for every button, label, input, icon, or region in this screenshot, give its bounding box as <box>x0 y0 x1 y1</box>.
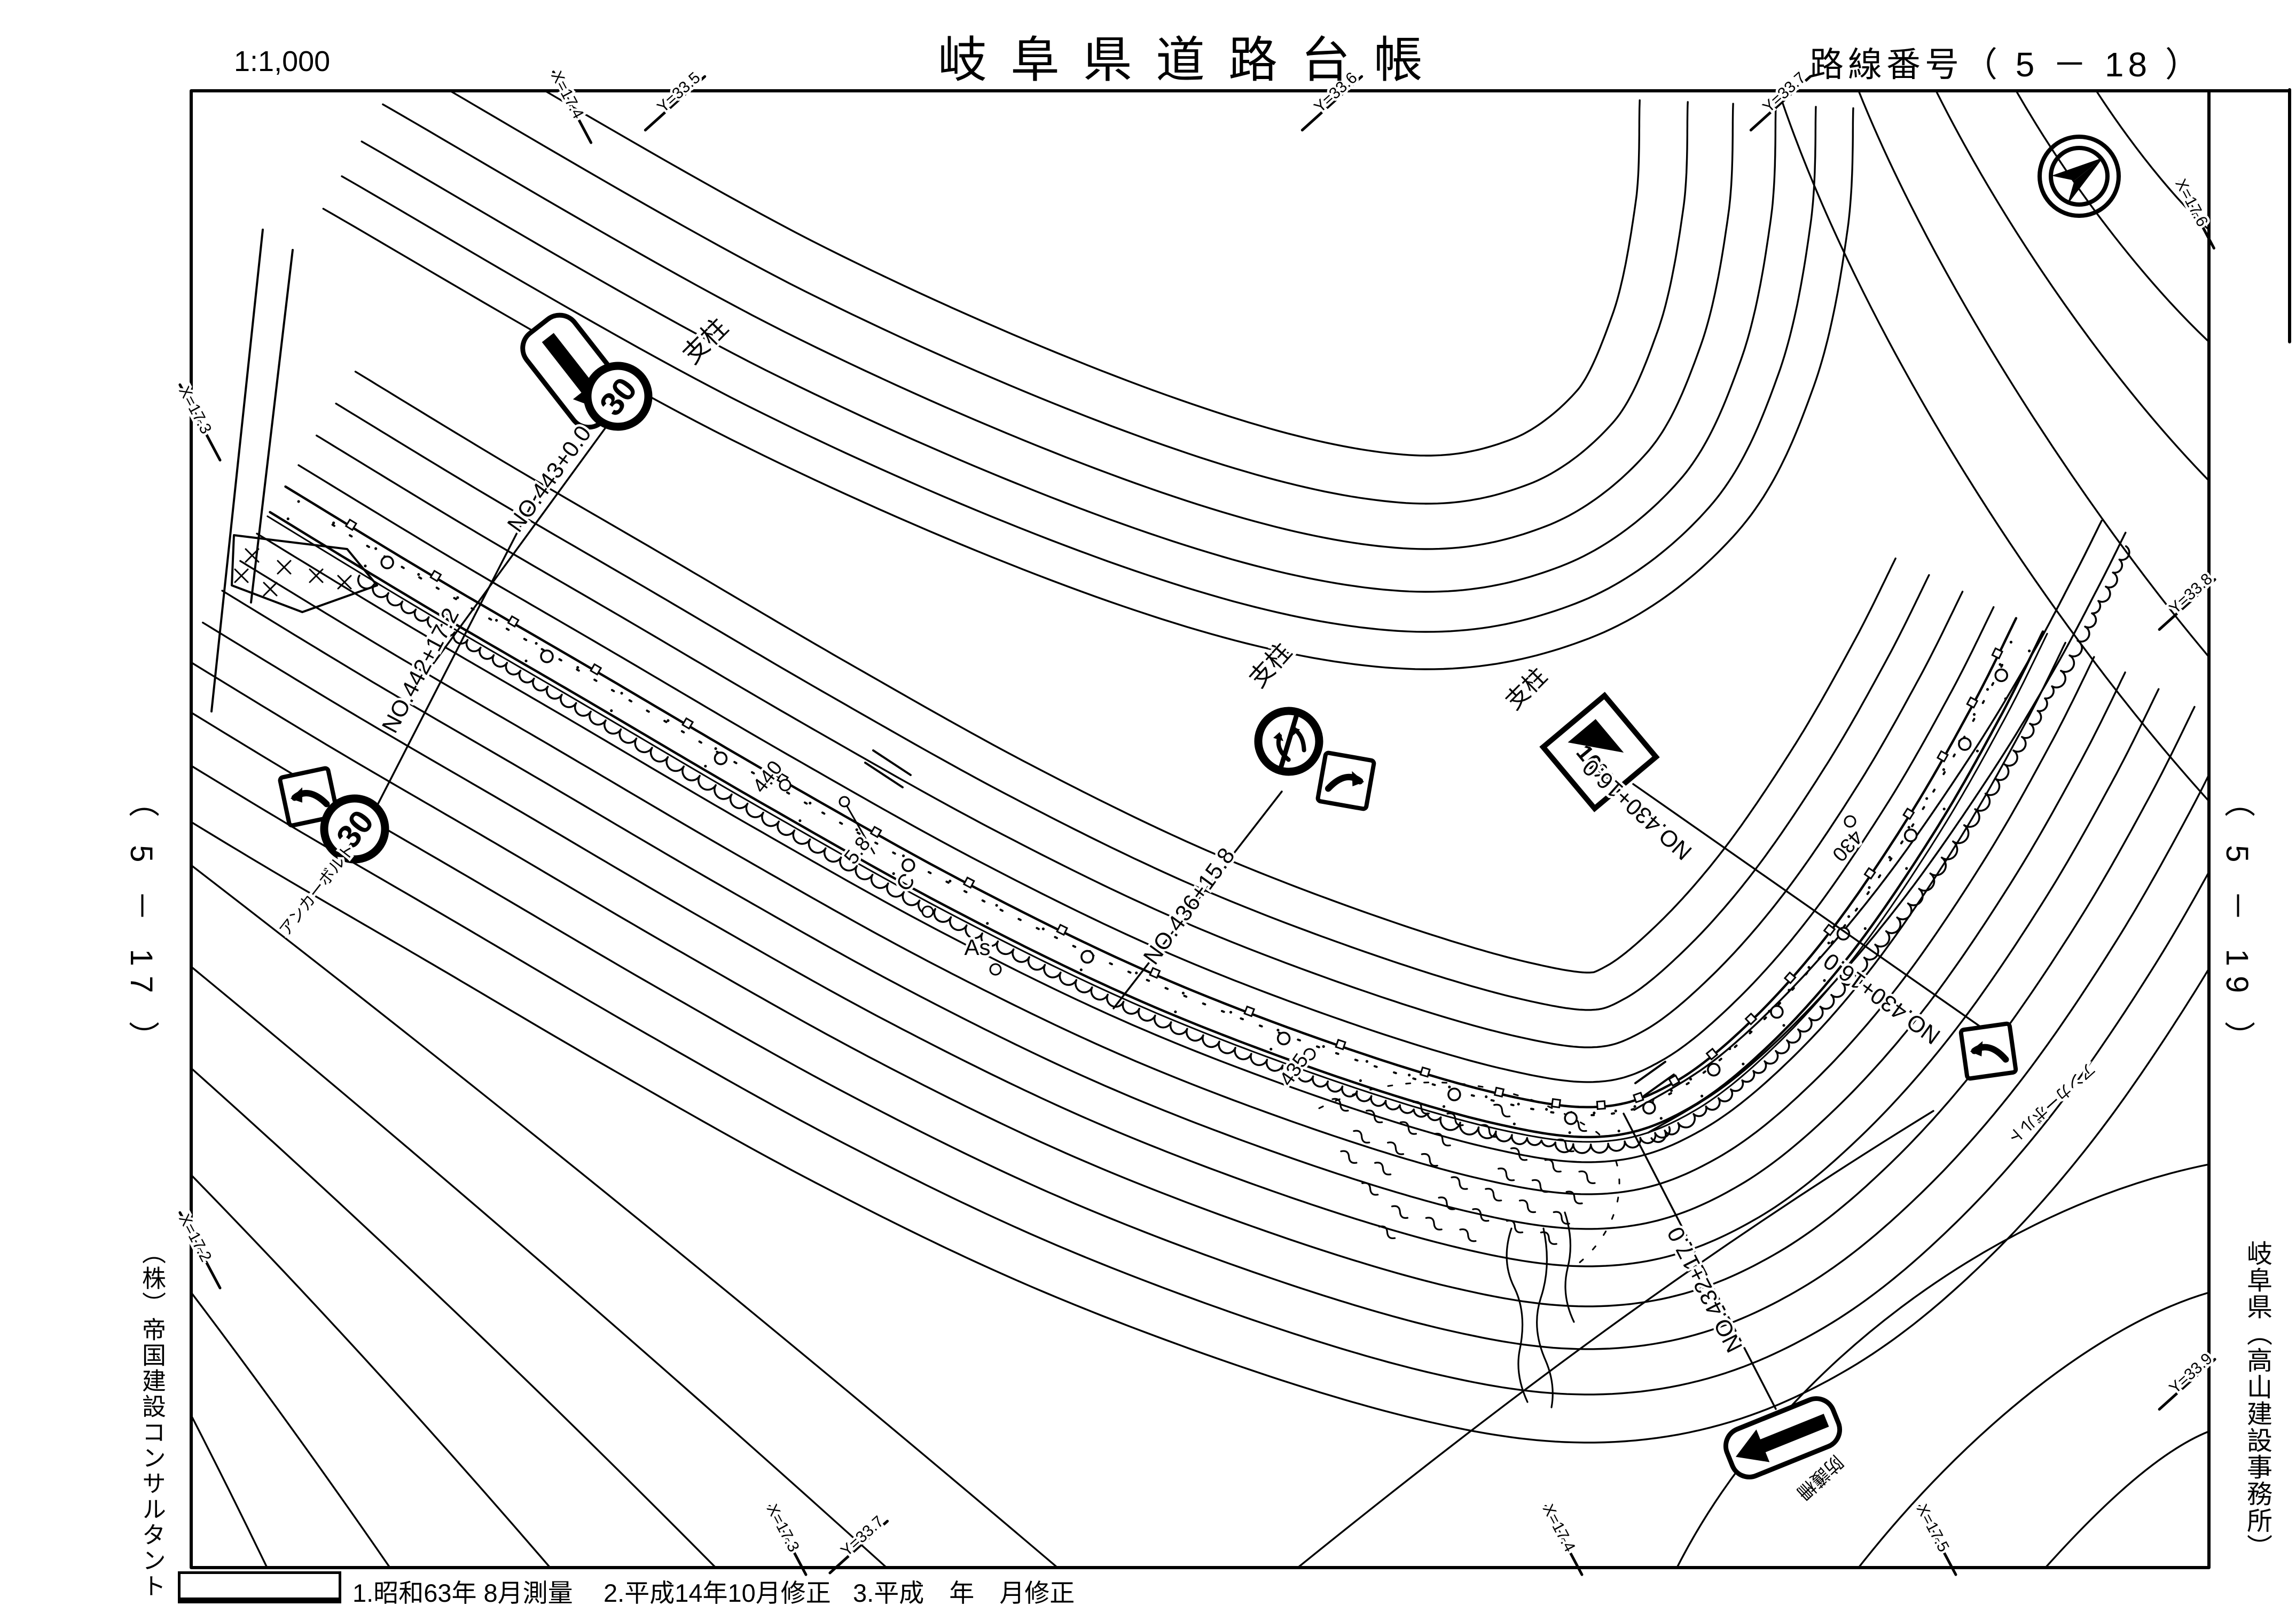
edge-dot <box>1864 927 1867 930</box>
stream-squiggle <box>1540 1230 1558 1246</box>
grid-tick-label: Y=33.5 <box>654 69 703 116</box>
legend-item-survey: 1.昭和63年 8月測量 <box>352 1572 573 1609</box>
road-point-symbol <box>715 753 726 764</box>
route-number-label: 路線番号（ 5 － 18 ） <box>1809 37 2204 87</box>
edge-dot <box>809 802 811 804</box>
station-label: NO.430+16.0 <box>1819 947 1945 1049</box>
edge-dot <box>986 922 989 925</box>
edge-dot <box>856 828 858 831</box>
stream-squiggle <box>1510 1146 1528 1162</box>
road-point-symbol <box>541 651 553 662</box>
surface-label: As <box>964 935 990 960</box>
edge-dot <box>1728 1047 1731 1050</box>
page-title: 岐阜県道路台帳 <box>938 20 1446 91</box>
stream-squiggle <box>1565 1189 1584 1205</box>
map-canvas: 303010%NO.443+0.0NO.442+17.2NO.436+15.8N… <box>0 0 2296 1621</box>
map-line <box>1859 1293 2209 1568</box>
edge-dot <box>1080 968 1083 971</box>
edge-dot <box>798 819 801 822</box>
curve-warning-sign <box>1961 1023 2016 1079</box>
edge-dot <box>1748 1029 1751 1032</box>
edge-dot <box>1615 1109 1617 1112</box>
edge-dot <box>1593 1111 1595 1114</box>
road-point-symbol <box>1565 1113 1577 1124</box>
map-line <box>1298 1111 1933 1568</box>
edge-dot <box>1443 1105 1445 1108</box>
edge-dot <box>1788 989 1790 991</box>
traffic-sign <box>1247 699 1331 784</box>
traffic-sign <box>1318 753 1375 810</box>
edge-dot <box>1868 886 1870 889</box>
stream-squiggle <box>1531 1178 1549 1194</box>
edge-dot <box>1229 1011 1232 1014</box>
map-content <box>111 23 2296 1568</box>
edge-dot <box>1828 942 1830 944</box>
grid-tick-label: X=17.3 <box>763 1501 803 1555</box>
grid-tick-label: Y=33.7 <box>837 1513 887 1560</box>
edge-dot <box>297 500 300 503</box>
edge-dot <box>620 692 623 694</box>
stream-squiggle <box>1497 1166 1515 1183</box>
edge-dot <box>1618 1130 1620 1132</box>
stream-squiggle <box>1438 1195 1456 1211</box>
guardrail-post <box>1244 1007 1254 1016</box>
edge-dot <box>1823 979 1825 982</box>
edge-dot <box>1135 972 1138 974</box>
edge-dot <box>1999 663 2001 666</box>
map-line <box>356 372 1896 973</box>
width-point <box>840 797 849 806</box>
surface-label: 440 <box>748 757 787 797</box>
road-point-symbol <box>381 557 393 568</box>
edge-dot <box>995 904 998 906</box>
road-point-symbol <box>1278 1032 1290 1044</box>
edge-dot <box>495 619 498 622</box>
guardrail-post <box>1597 1101 1605 1109</box>
map-line <box>286 487 2016 1107</box>
grid-tick-label: X=17.6 <box>2172 176 2211 230</box>
road-point-symbol <box>903 859 914 871</box>
station-label: NO.442+17.2 <box>377 604 464 737</box>
edge-dot <box>902 855 905 857</box>
map-line <box>257 534 2065 1162</box>
stream-squiggle <box>1339 1149 1358 1165</box>
map-line <box>191 1068 716 1568</box>
edge-dot <box>1660 1117 1663 1119</box>
edge-dot <box>1689 1078 1692 1080</box>
edge-dot <box>1182 992 1185 994</box>
edge-dot <box>1701 1095 1703 1098</box>
map-line <box>268 516 2047 1142</box>
stream-squiggle <box>1451 1175 1469 1191</box>
edge-dot <box>2004 698 2007 700</box>
edge-dot <box>1545 1108 1548 1110</box>
sign-label: 支柱 <box>677 313 733 369</box>
parcel-hatch-mark <box>264 583 277 596</box>
edge-dot <box>364 565 366 567</box>
stream-squiggle <box>1433 1132 1452 1148</box>
edge-dot <box>1517 1103 1520 1106</box>
edge-dot <box>287 518 289 520</box>
edge-dot <box>1905 867 1908 870</box>
north-arrow-icon <box>2040 137 2119 216</box>
map-line <box>2046 1431 2209 1568</box>
stream-squiggle <box>1578 1169 1596 1185</box>
edge-dot <box>704 765 707 768</box>
surveyor-company-label: （株）帝国建設コンサルタント <box>135 1240 169 1599</box>
grid-tick-label: X=17.2 <box>175 1211 215 1265</box>
road-point-symbol <box>1448 1089 1460 1100</box>
stream-squiggle <box>1378 1224 1396 1240</box>
edge-dot <box>1513 1123 1516 1125</box>
grid-tick-label: X=17.3 <box>175 383 215 437</box>
parcel-hatch-mark <box>310 569 323 582</box>
stream-squiggle <box>1391 1204 1409 1220</box>
road-register-sheet: 303010%NO.443+0.0NO.442+17.2NO.436+15.8N… <box>0 0 2296 1621</box>
road-point-symbol <box>1643 1102 1655 1114</box>
station-label: NO.443+0.0 <box>503 421 597 537</box>
edge-dot <box>1782 1024 1785 1027</box>
edge-dot <box>1174 1011 1177 1013</box>
road-point-symbol <box>1771 1006 1783 1018</box>
border-ticks: X=17.4Y=33.5Y=33.6Y=33.7X=17.3X=17.2X=17… <box>175 68 2216 1575</box>
survey-point <box>1845 816 1855 827</box>
sign-label: 支柱 <box>1500 663 1552 715</box>
edge-dot <box>1973 713 1976 716</box>
edge-dot <box>714 747 717 750</box>
edge-dot <box>2028 649 2031 652</box>
surface-label: C <box>892 869 920 896</box>
adjacent-sheet-left-label: （ 5 － 17 ） <box>119 786 163 1061</box>
office-label: 岐阜県（高山建設事務所） <box>2238 1240 2275 1561</box>
edge-dot <box>1976 749 1979 752</box>
edge-dot <box>417 573 420 576</box>
edge-dot <box>1270 1048 1272 1051</box>
map-line <box>299 465 1994 1082</box>
edge-dot <box>1408 1074 1410 1076</box>
edge-dot <box>456 596 459 599</box>
edge-dot <box>1847 915 1850 918</box>
edge-dot <box>1485 1095 1487 1098</box>
edge-dot <box>1925 797 1928 800</box>
map-line <box>191 1175 550 1568</box>
stream-squiggle <box>1471 1207 1490 1223</box>
revision-legend: 1.昭和63年 8月測量 2.平成14年10月修正 3.平成 年 月修正 <box>0 1569 2296 1601</box>
road-point-symbol <box>1905 829 1917 841</box>
map-line <box>191 865 1057 1568</box>
map-scale-label: 1:1,000 <box>234 45 330 78</box>
guardrail-post <box>1150 968 1159 977</box>
station-label: NO.436+15.8 <box>1139 843 1240 969</box>
legend-color-box <box>178 1571 341 1603</box>
parcel-hatch-mark <box>235 569 248 582</box>
legend-item-revision2: 3.平成 年 月修正 <box>853 1572 1075 1609</box>
legend-item-revision1: 2.平成14年10月修正 <box>604 1572 831 1609</box>
map-line <box>2016 91 2209 342</box>
grid-tick-label: X=17.4 <box>1539 1501 1579 1555</box>
edge-dot <box>576 666 579 669</box>
edge-dot <box>949 880 951 882</box>
edge-dot <box>1742 1062 1744 1065</box>
station-label: NO.432+17.0 <box>1663 1223 1748 1357</box>
stream-squiggle <box>1374 1161 1392 1177</box>
map-line <box>1537 1228 1553 1407</box>
edge-dot <box>1276 1029 1279 1031</box>
edge-dot <box>524 660 527 662</box>
guardrail-post <box>1495 1087 1504 1097</box>
stream-squiggle <box>1361 1181 1379 1197</box>
map-line <box>1859 91 2209 657</box>
edge-dot <box>610 709 613 712</box>
stream-squiggle <box>1493 1102 1511 1118</box>
edge-dot <box>1908 826 1910 828</box>
map-line <box>1507 1228 1527 1402</box>
edge-dot <box>332 521 335 524</box>
map-line <box>182 657 2195 1306</box>
road-point-symbol <box>1959 738 1971 750</box>
retaining-wall <box>358 576 1670 1153</box>
edge-dot <box>535 642 537 645</box>
stream-squiggle <box>1484 1187 1502 1203</box>
edge-dot <box>667 719 669 722</box>
map-line <box>191 1415 267 1568</box>
edge-dot <box>1448 1086 1451 1089</box>
survey-point <box>780 780 790 790</box>
traffic-sign <box>1961 1023 2016 1079</box>
guardrail-post <box>1421 1067 1430 1076</box>
map-line <box>191 967 887 1568</box>
surface-label: 430 <box>1828 825 1867 865</box>
edge-dot <box>1359 1079 1362 1082</box>
parcel-hatch-mark <box>278 561 291 574</box>
edge-dot <box>2010 641 2012 644</box>
map-line <box>203 623 2159 1266</box>
map-frame <box>191 90 2290 1568</box>
edge-dot <box>1042 928 1045 930</box>
edge-dot <box>1569 1131 1571 1134</box>
road-point-symbol <box>1082 951 1093 962</box>
survey-point <box>922 906 933 917</box>
edge-dot <box>1986 688 1989 691</box>
map-line <box>240 561 2094 1194</box>
map-labels: NO.443+0.0NO.442+17.2NO.436+15.8NO.430+1… <box>276 313 2098 1503</box>
map-line <box>1634 521 2102 1110</box>
map-line <box>1648 532 2126 1132</box>
stream-squiggle <box>1459 1227 1477 1243</box>
road-point-symbol <box>1708 1064 1720 1076</box>
edge-dot <box>1322 1045 1325 1048</box>
guardrail-post <box>1785 973 1796 983</box>
sign-label: アンカーボルト <box>2004 1059 2098 1147</box>
road-point-symbol <box>1995 669 2007 681</box>
edge-dot <box>892 872 895 875</box>
edge-dot <box>1670 1089 1673 1092</box>
guardrail-post <box>1336 1040 1345 1050</box>
edge-dot <box>1651 1098 1654 1101</box>
guardrail-post <box>1552 1099 1561 1108</box>
survey-point <box>990 964 1001 975</box>
stream-squiggle <box>1425 1216 1443 1232</box>
edge-dot <box>1366 1060 1368 1063</box>
sign-label: アンカーボルト <box>276 841 359 939</box>
station-line <box>1633 784 1988 1032</box>
guardrail-post <box>1634 1093 1643 1102</box>
edge-dot <box>1888 856 1891 859</box>
stream-squiggle <box>1518 1198 1537 1214</box>
sign-label: 支柱 <box>1243 638 1297 693</box>
edge-dot <box>374 547 377 550</box>
adjacent-sheet-right-label: （ 5 － 19 ） <box>2214 786 2259 1061</box>
stream-squiggle <box>1365 1108 1383 1124</box>
edge-dot <box>1807 966 1810 969</box>
edge-dot <box>1942 768 1945 771</box>
curve-warning-sign <box>1318 753 1375 810</box>
map-line <box>191 1293 390 1568</box>
grid-tick-label: X=17.5 <box>1913 1501 1953 1555</box>
guardrail-post <box>1746 1014 1757 1024</box>
map-line <box>211 230 263 711</box>
edge-dot <box>1633 1105 1636 1108</box>
edge-dot <box>1943 808 1946 810</box>
